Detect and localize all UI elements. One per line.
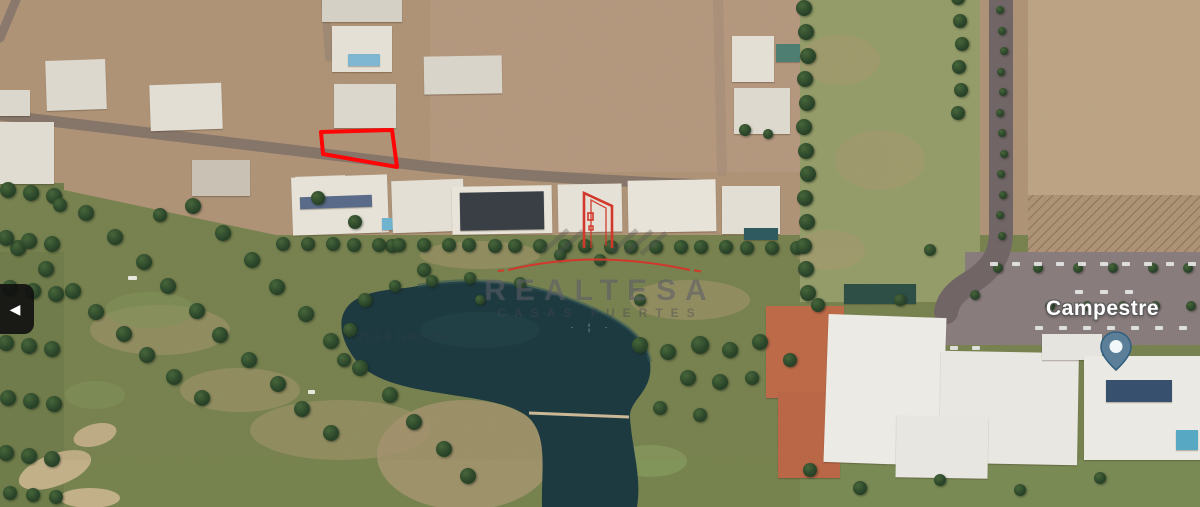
parked-car	[950, 346, 958, 350]
satellite-map-photo[interactable]: REALTESA CASAS FUERTES · ¦ · 2024 Google…	[0, 0, 1200, 507]
parked-car	[1083, 326, 1091, 330]
cars-layer	[0, 0, 1200, 507]
parked-car	[1155, 326, 1163, 330]
location-pin-icon[interactable]	[1098, 330, 1134, 372]
golf-cart	[308, 390, 315, 394]
property-boundary-outline	[300, 115, 420, 185]
carousel-prev-button[interactable]: ◀	[0, 284, 34, 334]
parked-car	[1078, 262, 1086, 266]
parked-car	[1012, 262, 1020, 266]
parked-car	[1122, 262, 1130, 266]
parked-car	[1100, 290, 1108, 294]
parked-car	[1034, 262, 1042, 266]
parked-car	[1179, 326, 1187, 330]
parked-car	[1166, 262, 1174, 266]
street-label-campestre: Campestre	[1046, 297, 1159, 321]
parked-car	[1125, 290, 1133, 294]
parked-car	[990, 262, 998, 266]
parked-car	[1144, 262, 1152, 266]
chevron-left-icon: ◀	[10, 302, 21, 316]
golf-cart	[128, 276, 137, 280]
parked-car	[1100, 262, 1108, 266]
parked-car	[1075, 290, 1083, 294]
parked-car	[1035, 326, 1043, 330]
parked-car	[1188, 262, 1196, 266]
map-attribution: 2024 Google	[356, 328, 450, 344]
parked-car	[1059, 326, 1067, 330]
parked-car	[1056, 262, 1064, 266]
parked-car	[972, 346, 980, 350]
